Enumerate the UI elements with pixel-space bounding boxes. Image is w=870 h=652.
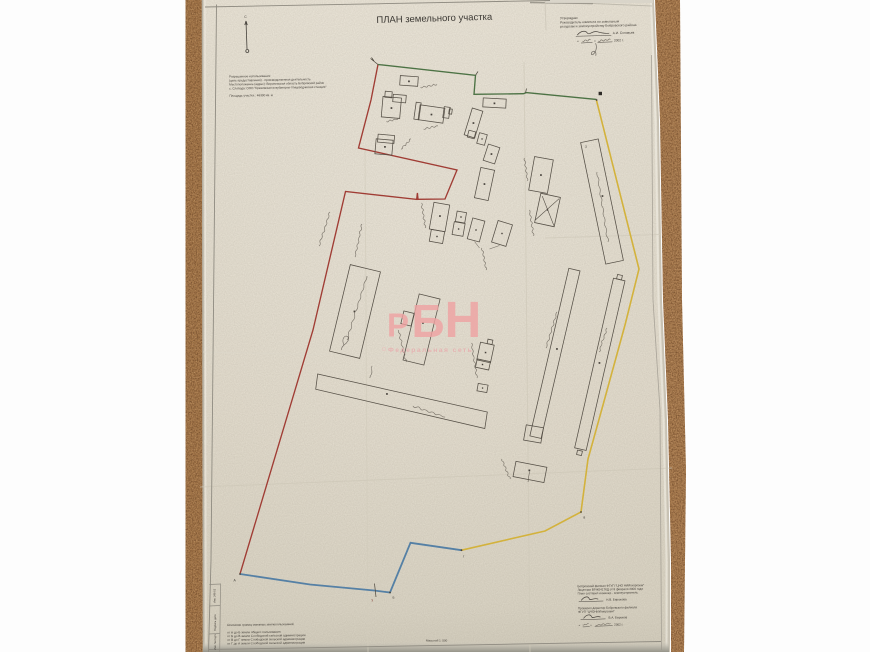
svg-text:Федеральная сеть: Федеральная сеть [388, 347, 473, 354]
svg-text:Площадь участка : 46300 кв. м: Площадь участка : 46300 кв. м [229, 93, 273, 98]
svg-text:Подпись дата: Подпись дата [213, 614, 217, 631]
svg-text:Инв. 246-02: Инв. 246-02 [213, 588, 217, 603]
svg-text:»: » [594, 39, 596, 43]
svg-text:Инв. № подл.: Инв. № подл. [213, 634, 217, 650]
svg-text:Масштаб 1 :500: Масштаб 1 :500 [426, 639, 448, 643]
svg-text:в: в [584, 516, 586, 520]
svg-text:2002 г.: 2002 г. [614, 38, 624, 42]
svg-text:ФГУП "ЦЧОНИИгипрозем": ФГУП "ЦЧОНИИгипрозем" [578, 609, 615, 614]
svg-text:«: « [577, 39, 579, 43]
svg-text:Р: Р [387, 307, 409, 344]
svg-text:В.А. Бирюков: В.А. Бирюков [609, 615, 628, 619]
svg-text:Н.В. Бирюкова: Н.В. Бирюкова [606, 597, 627, 601]
svg-text:Б: Б [412, 295, 445, 347]
svg-text:З: З [585, 145, 587, 149]
svg-text:Н: Н [445, 291, 482, 348]
svg-text:2002 г.: 2002 г. [614, 623, 623, 627]
svg-text:А.И. Соловьев: А.И. Соловьев [613, 31, 635, 35]
svg-text:Б: Б [393, 596, 395, 600]
